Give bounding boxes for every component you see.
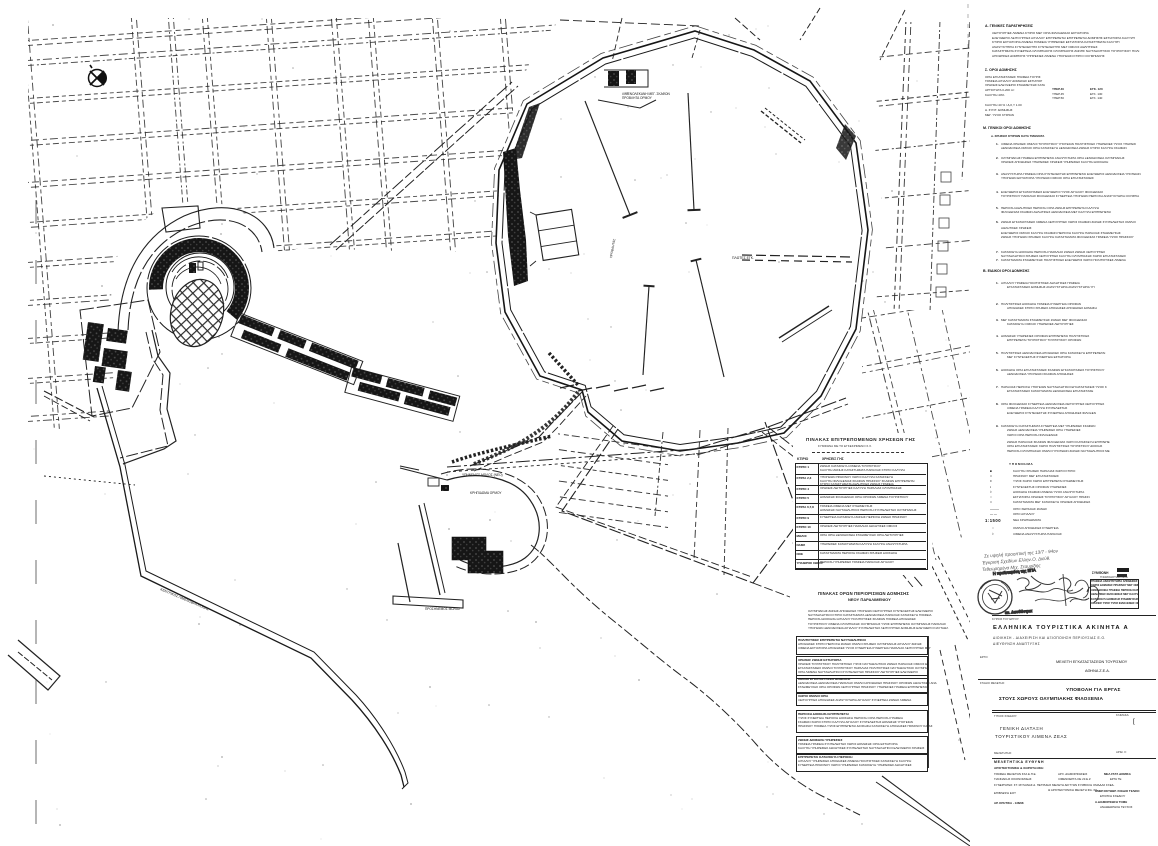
svg-text:ΠΡΟΒΛΗΤΑ ΟΡΜΟΥ: ΠΡΟΒΛΗΤΑ ΟΡΜΟΥ (622, 96, 653, 100)
svg-text:ΚΕΝΤΡΙΚΟΣ ΛΙΜΕΝΟΒΡΑΧΙΟΝΑΣ: ΚΕΝΤΡΙΚΟΣ ΛΙΜΕΝΟΒΡΑΧΙΟΝΑΣ (160, 587, 210, 611)
svg-text:ΥΠΗΝΕΜΟΣ ΜΩΛΟΣ (ΝΕΟ): ΥΠΗΝΕΜΟΣ ΜΩΛΟΣ (ΝΕΟ) (462, 473, 503, 477)
svg-text:ΠΡΟΒΛΗΤΑΣ: ΠΡΟΒΛΗΤΑΣ (609, 238, 616, 258)
svg-text:ΠΛΩΤΕΣ ΕΓΚ.: ΠΛΩΤΕΣ ΕΓΚ. (732, 256, 754, 260)
svg-text:Η προϊσταμένη της ΕΠΑ: Η προϊσταμένη της ΕΠΑ (993, 567, 1037, 576)
svg-text:αν. Διευθύντρια: αν. Διευθύντρια (1005, 608, 1033, 615)
svg-text:ΚΡΗΠΙΔΩΜΑ ΟΡΜΟΥ: ΚΡΗΠΙΔΩΜΑ ΟΡΜΟΥ (470, 491, 502, 495)
svg-text:ΠΡΟΣΗΝΕΜΟΣ ΜΩΛΟΣ: ΠΡΟΣΗΝΕΜΟΣ ΜΩΛΟΣ (425, 607, 460, 611)
